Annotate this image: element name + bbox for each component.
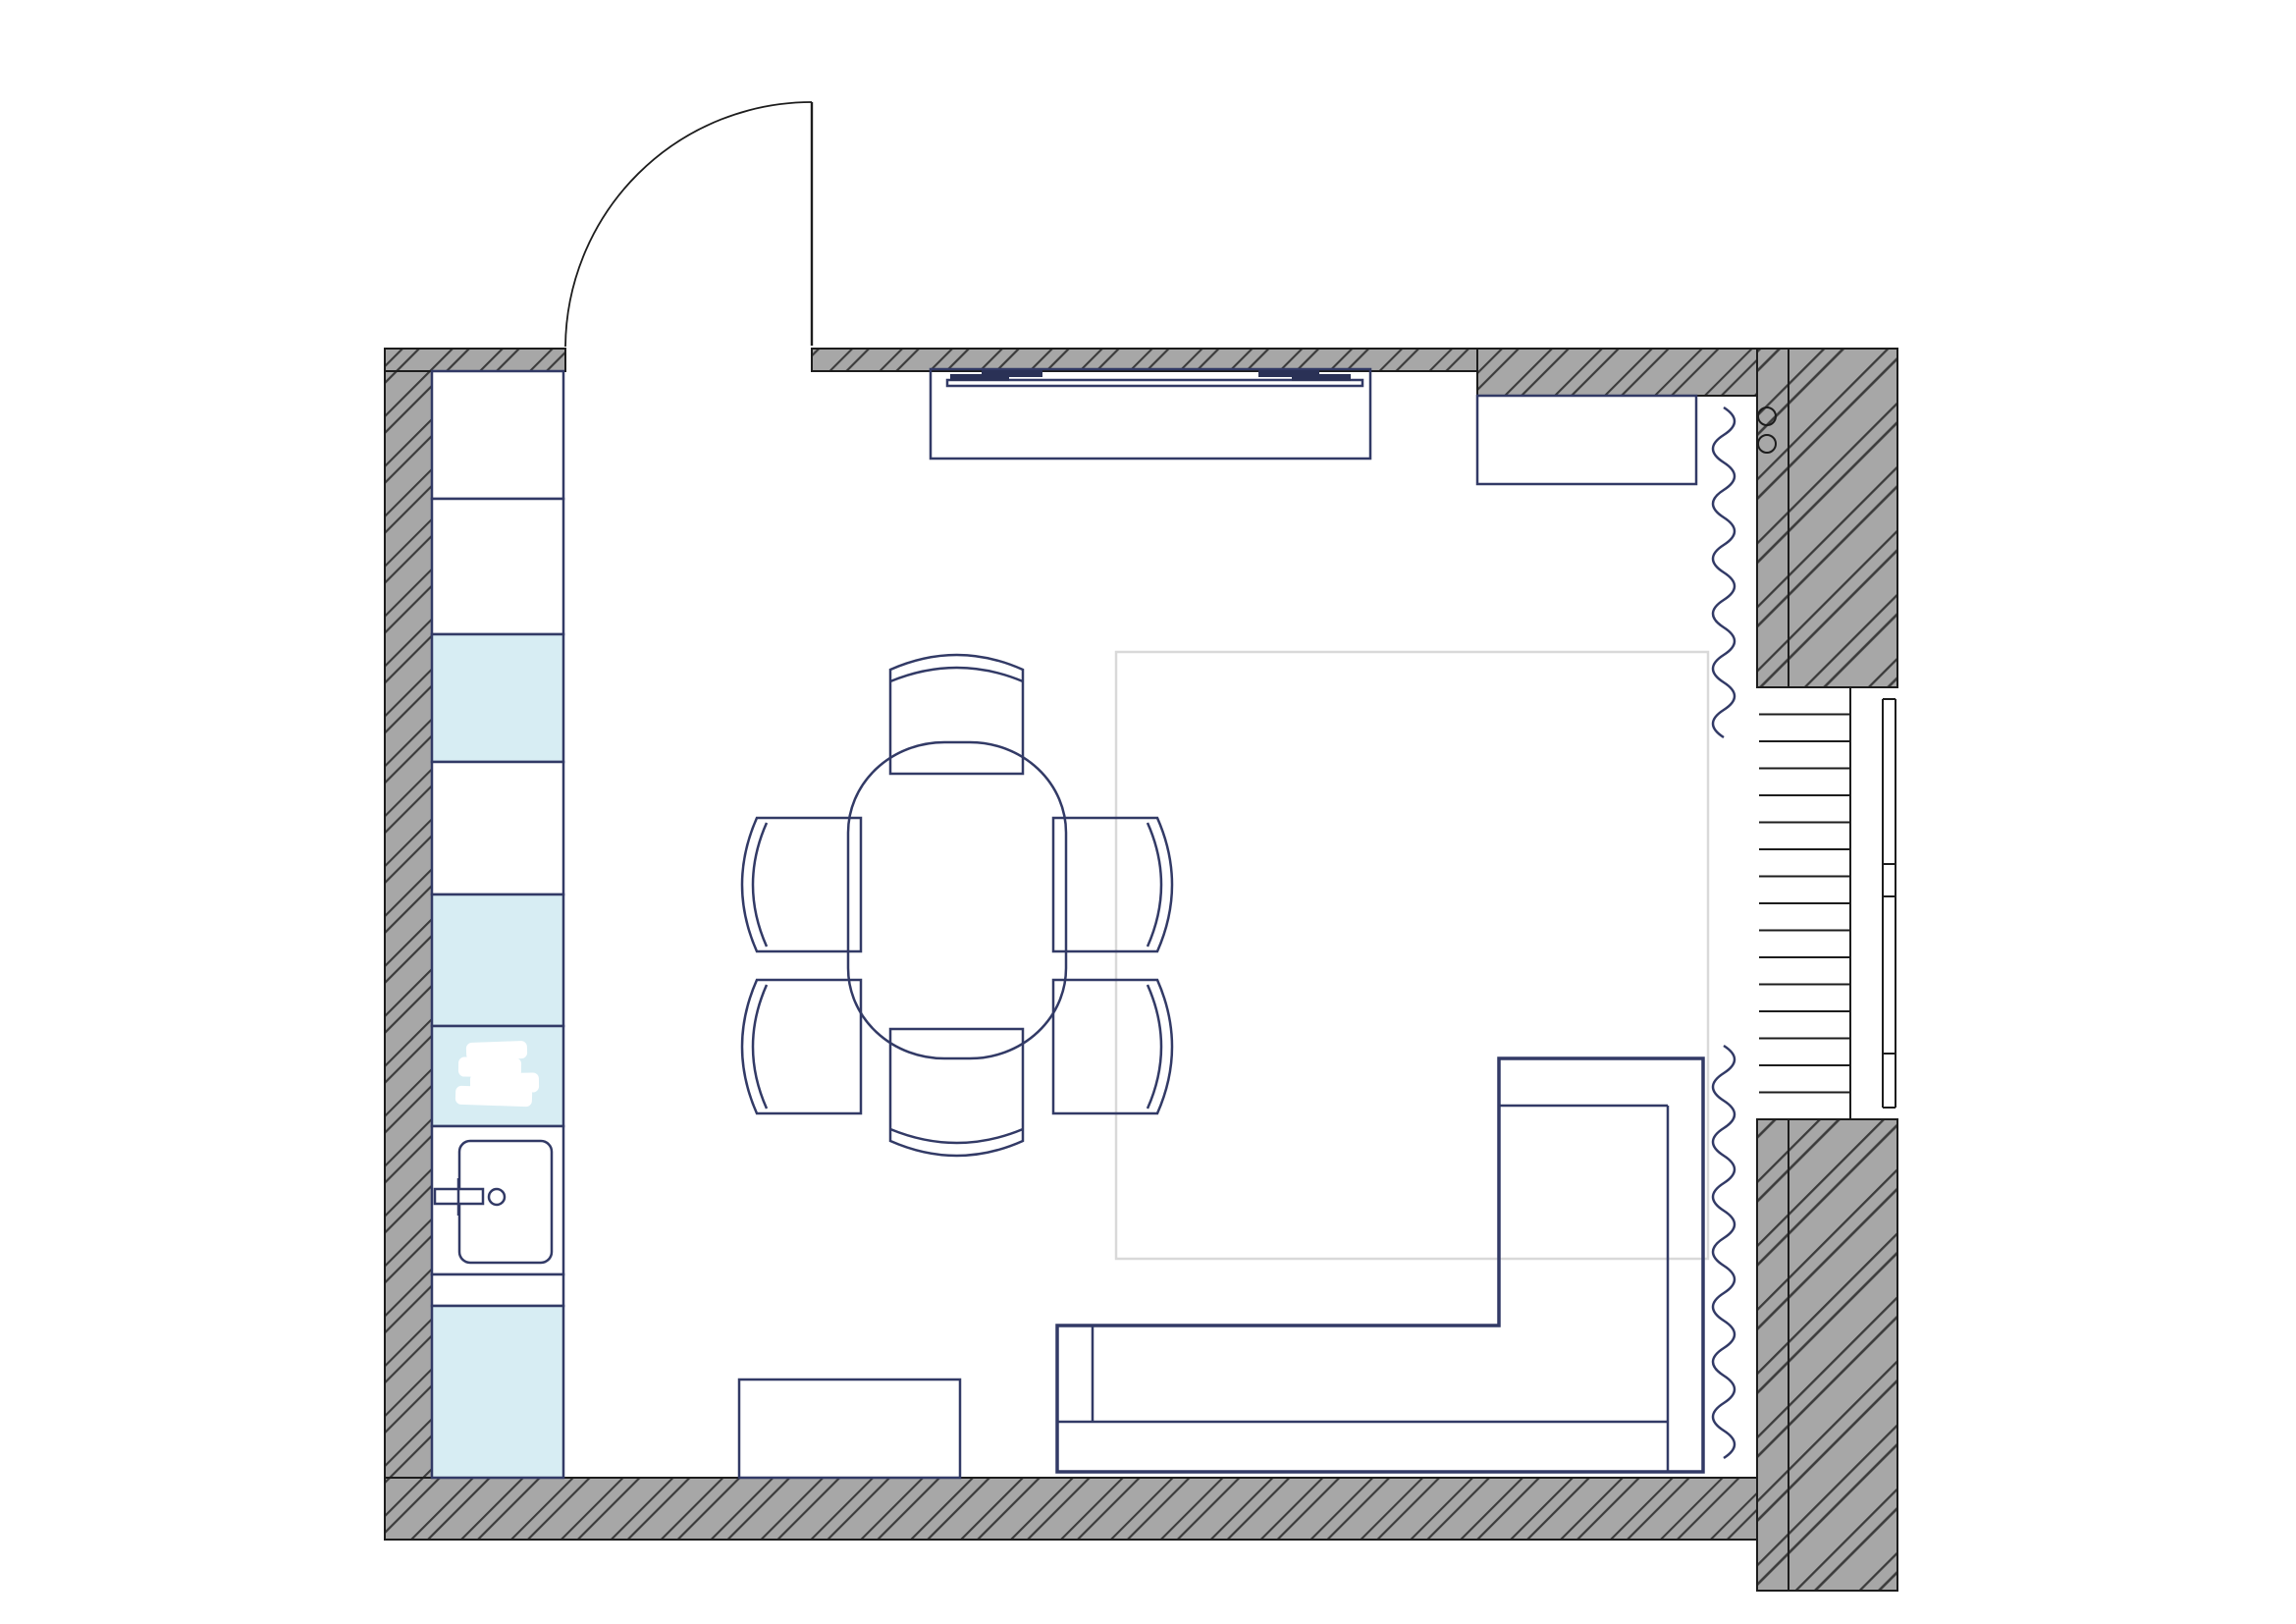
sideboard-outline	[931, 369, 1370, 459]
floor-plan-drawing	[0, 0, 2296, 1624]
stair-railing	[1883, 699, 1896, 1108]
kitchen-cabinet-white	[432, 371, 563, 499]
curtain-top	[1713, 407, 1735, 737]
kitchen-cabinet-blue	[432, 634, 563, 762]
kitchen-cabinet-blue	[432, 1306, 563, 1478]
rug-outline	[1116, 652, 1708, 1259]
wall-bottom	[385, 1478, 1757, 1540]
wall-block-top-right	[1757, 349, 1897, 687]
kitchen-cabinet-white	[432, 499, 563, 634]
curtain-bottom	[1713, 1046, 1735, 1458]
wall-top-left-of-door	[385, 349, 565, 371]
sofa-outline	[1057, 1058, 1703, 1472]
walls	[385, 349, 1897, 1591]
sideboard-object-left-2	[982, 370, 1042, 377]
corner-sofa	[1057, 1058, 1703, 1472]
dining-chair-bottom	[890, 1029, 1023, 1156]
dining-chair-right-lower	[1053, 980, 1172, 1113]
dining-chair-right-upper	[1053, 818, 1172, 951]
wall-top-center	[812, 349, 1477, 371]
door-swing-arc	[565, 102, 812, 347]
wall-block-bottom-right	[1757, 1119, 1897, 1591]
wall-top-right-thick	[1477, 349, 1757, 396]
wall-left	[385, 349, 432, 1537]
floor-plan-page	[0, 0, 2296, 1624]
kitchen-cabinets	[432, 371, 563, 1478]
bench-outline	[739, 1380, 960, 1478]
sideboard	[931, 369, 1370, 459]
kitchen-cabinet-scribble	[455, 1041, 539, 1107]
kitchen-cabinet-white	[432, 1274, 563, 1306]
kitchen-cabinet-blue	[432, 894, 563, 1026]
stair-treads	[1759, 687, 1850, 1119]
sideboard-object-right-1	[1292, 374, 1351, 381]
tv-bench-outline	[1477, 396, 1696, 484]
dining-set	[742, 655, 1172, 1156]
dining-chair-top	[890, 655, 1023, 774]
dining-table	[848, 742, 1066, 1058]
dining-chair-left-lower	[742, 980, 861, 1113]
kitchen-cabinet-white	[432, 762, 563, 894]
dining-chair-left-upper	[742, 818, 861, 951]
entry-door	[565, 102, 812, 347]
